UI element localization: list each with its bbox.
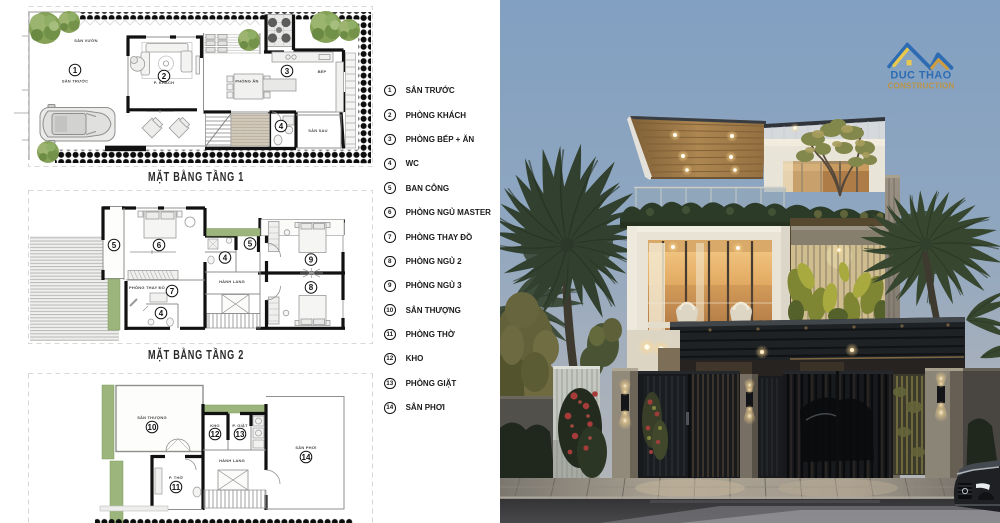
svg-text:4: 4	[159, 309, 164, 318]
svg-text:SÂN VƯỜN: SÂN VƯỜN	[74, 38, 97, 43]
svg-text:8: 8	[309, 283, 314, 292]
svg-text:7: 7	[170, 287, 175, 296]
svg-text:MẶT BẰNG TẦNG 2: MẶT BẰNG TẦNG 2	[148, 347, 244, 362]
svg-text:5: 5	[112, 241, 117, 250]
svg-text:3: 3	[285, 67, 290, 76]
svg-text:11: 11	[172, 483, 181, 492]
svg-text:P. THỜ: P. THỜ	[169, 475, 184, 480]
svg-text:KHO: KHO	[210, 423, 220, 428]
svg-text:SÂN PHƠI: SÂN PHƠI	[295, 445, 316, 450]
svg-text:PHÒNG THAY ĐỒ: PHÒNG THAY ĐỒ	[129, 285, 165, 290]
svg-text:SÂN SAU: SÂN SAU	[308, 128, 327, 133]
svg-text:SÂN THƯỢNG: SÂN THƯỢNG	[137, 415, 167, 420]
svg-text:1: 1	[73, 66, 78, 75]
svg-text:P. KHÁCH: P. KHÁCH	[154, 80, 174, 85]
svg-text:MẶT BẰNG TẦNG 1: MẶT BẰNG TẦNG 1	[148, 169, 244, 184]
svg-text:13: 13	[236, 430, 245, 439]
svg-text:4: 4	[223, 253, 228, 262]
svg-text:4: 4	[279, 122, 284, 131]
svg-text:PHÒNG ĂN: PHÒNG ĂN	[235, 79, 258, 84]
svg-text:12: 12	[211, 430, 220, 439]
svg-text:SÂN TRƯỚC: SÂN TRƯỚC	[62, 79, 88, 84]
svg-text:14: 14	[302, 453, 311, 462]
svg-text:9: 9	[309, 255, 314, 264]
svg-text:10: 10	[148, 423, 157, 432]
svg-text:CONSTRUCTION: CONSTRUCTION	[888, 81, 955, 90]
svg-text:BẾP: BẾP	[318, 69, 327, 74]
svg-text:DUC THAO: DUC THAO	[890, 70, 951, 82]
svg-text:P. GIẶT: P. GIẶT	[232, 423, 248, 428]
svg-text:HÀNH LANG: HÀNH LANG	[219, 458, 245, 463]
svg-text:5: 5	[248, 239, 253, 248]
svg-text:HÀNH LANG: HÀNH LANG	[219, 279, 245, 284]
svg-text:6: 6	[157, 241, 162, 250]
